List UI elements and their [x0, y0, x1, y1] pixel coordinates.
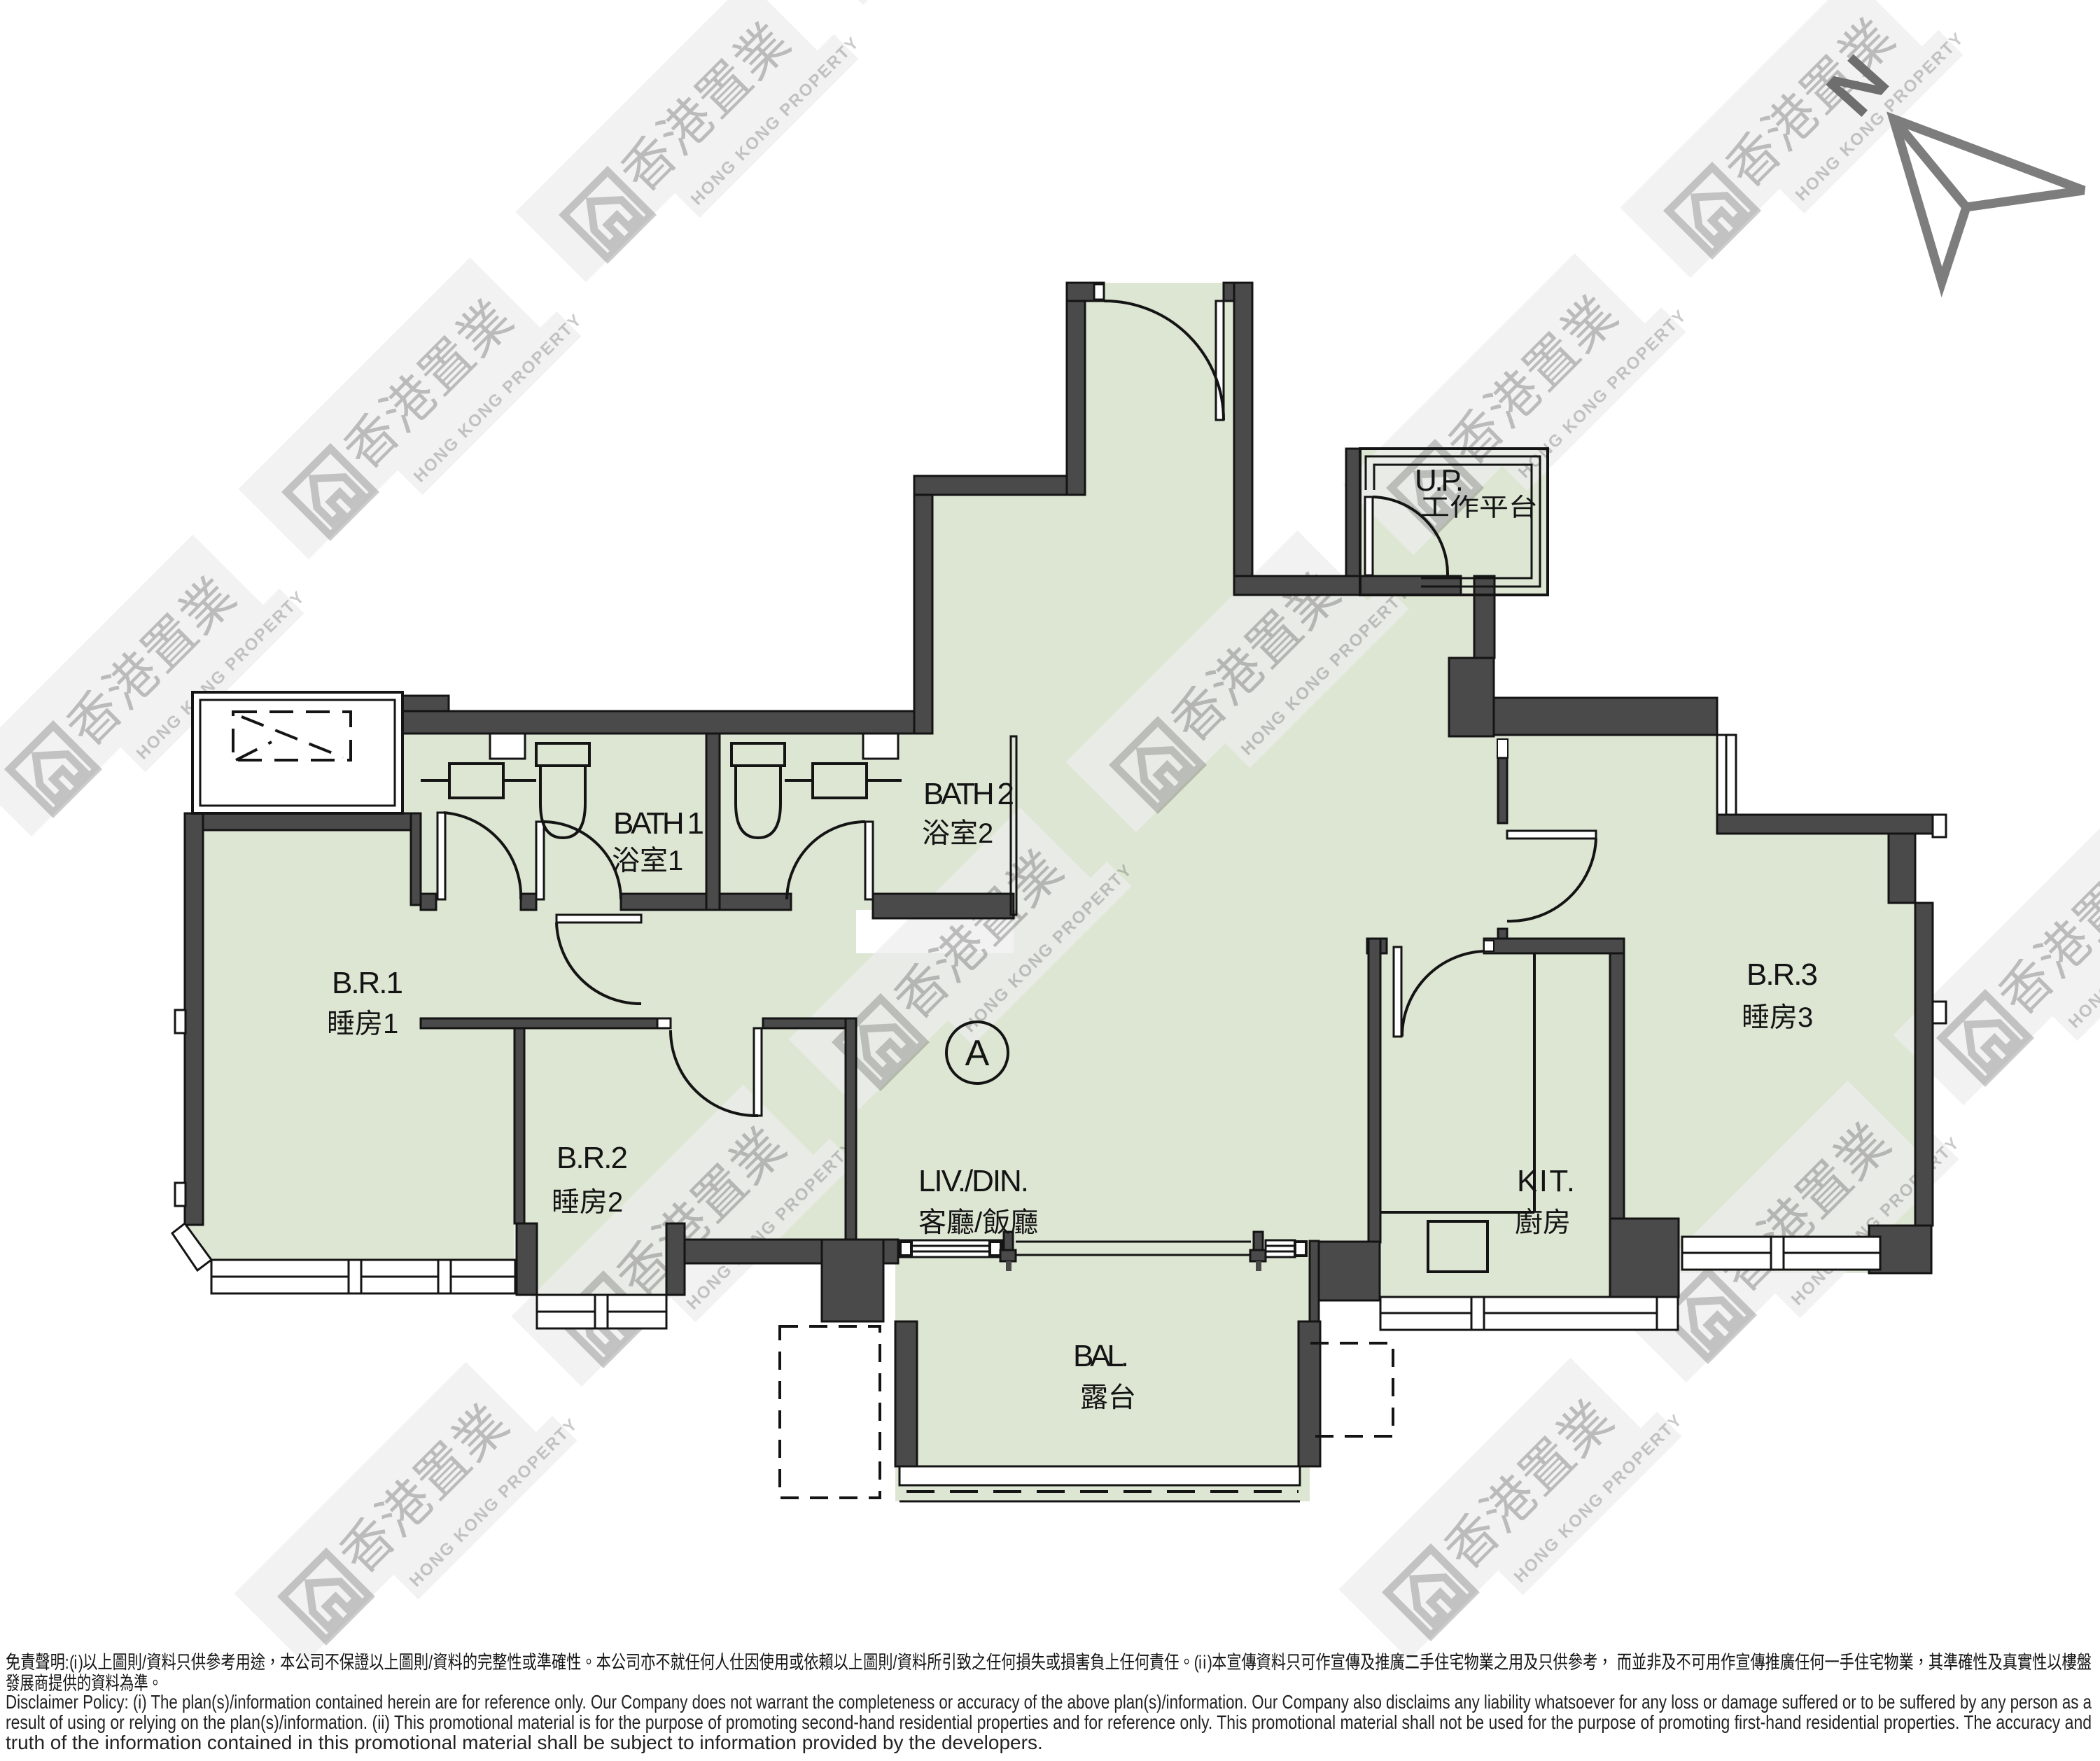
svg-text:result of using or relying on: result of using or relying on the plan(s…: [6, 1711, 2092, 1733]
svg-text:3: 3: [1798, 1002, 1813, 1033]
svg-text:i: i: [1198, 1653, 1202, 1674]
svg-text:/: /: [893, 1653, 897, 1674]
svg-text:BATH 2: BATH 2: [923, 777, 1014, 811]
svg-text:BATH 1: BATH 1: [613, 806, 704, 841]
svg-text:Disclaimer Policy: (i) The pla: Disclaimer Policy: (i) The plan(s)/infor…: [6, 1691, 2092, 1713]
svg-text:): ): [1207, 1653, 1212, 1674]
svg-text:U.P.: U.P.: [1415, 463, 1464, 498]
svg-text:A: A: [965, 1033, 990, 1074]
svg-text:): ): [78, 1653, 83, 1674]
svg-text:i: i: [1203, 1653, 1206, 1674]
svg-text::: :: [65, 1653, 69, 1674]
svg-text:i: i: [74, 1653, 78, 1674]
svg-text:/: /: [142, 1653, 146, 1674]
svg-text:1: 1: [668, 846, 683, 876]
svg-text:1: 1: [383, 1009, 398, 1039]
svg-text:/: /: [974, 1207, 983, 1238]
svg-text:truth of the information conta: truth of the information contained in th…: [6, 1732, 1043, 1753]
svg-text:B.R.3: B.R.3: [1746, 957, 1818, 992]
svg-text:2: 2: [978, 818, 993, 849]
svg-text:LIV./DIN.: LIV./DIN.: [918, 1164, 1029, 1198]
svg-text:BAL.: BAL.: [1073, 1339, 1129, 1373]
svg-text:B.R.1: B.R.1: [332, 966, 403, 1000]
svg-text:2: 2: [608, 1187, 623, 1218]
svg-text:B.R.2: B.R.2: [556, 1141, 628, 1175]
svg-text:/: /: [428, 1653, 433, 1674]
svg-text:KIT.: KIT.: [1517, 1164, 1575, 1198]
